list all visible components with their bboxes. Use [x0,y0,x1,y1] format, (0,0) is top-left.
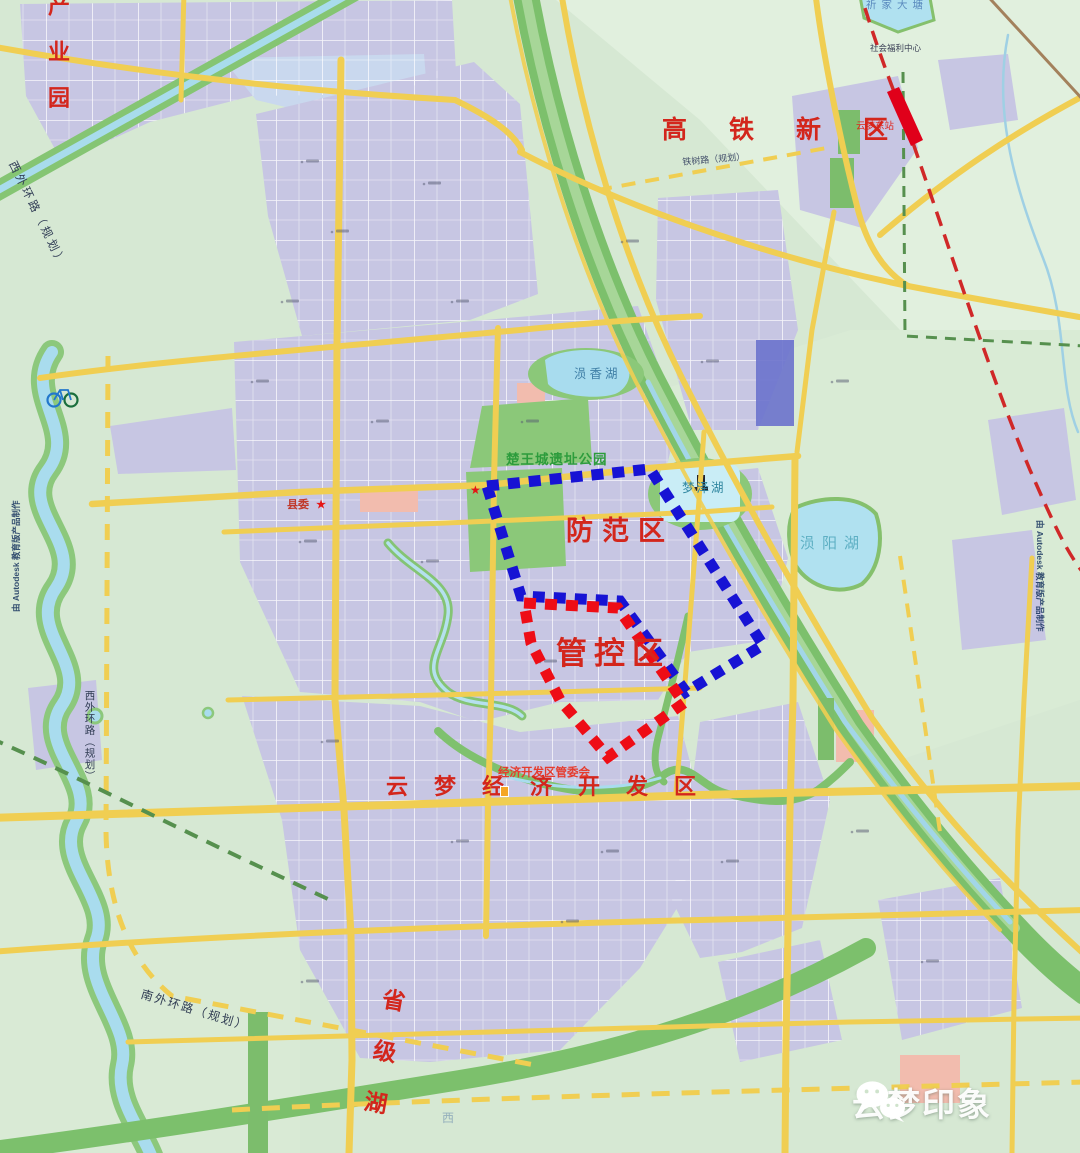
wechat-icon [852,1078,910,1126]
control-zone-label: 管控区 [556,638,670,669]
map-base [0,0,1080,1153]
museum-star-icon: ★ [470,484,481,496]
county-committee-label: 县委 ★ [287,500,326,511]
autodesk-watermark-right: 由 Autodesk 教育版产品制作 [1036,520,1045,631]
yunyang-lake-label: 涢阳湖 [800,536,866,551]
autodesk-watermark-left: 由 Autodesk 教育版产品制作 [12,501,21,612]
city-map: 产业园 高铁新区 防范区 管控区 云梦经济开发区 省级湖 楚王城遗址公园 经济开… [0,0,1080,1153]
west-ring-road-label-south: 西外环路（规划） [84,690,95,782]
heritage-park-label: 楚王城遗址公园 [506,453,608,467]
industrial-park-label: 产业园 [46,0,68,132]
yunxiang-lake-label: 涢香湖 [574,368,621,381]
east-station-label: 云梦东站 [856,122,894,132]
committee-marker-icon [500,786,509,797]
brand-watermark: 云梦印象 [852,1078,992,1126]
mengze-lake-label: 梦泽湖 [682,482,726,495]
county-committee-text: 县委 [287,499,309,511]
star-marker-icon: ★ [316,499,326,511]
edz-committee-label: 经济开发区管委会 [498,768,590,780]
qijia-pond-label: 祈家大塘 [866,0,928,11]
welfare-center-label: 社会福利中心 [870,44,921,53]
prevention-zone-label: 防范区 [566,518,674,545]
west-river-char-label: 西 [442,1112,454,1124]
